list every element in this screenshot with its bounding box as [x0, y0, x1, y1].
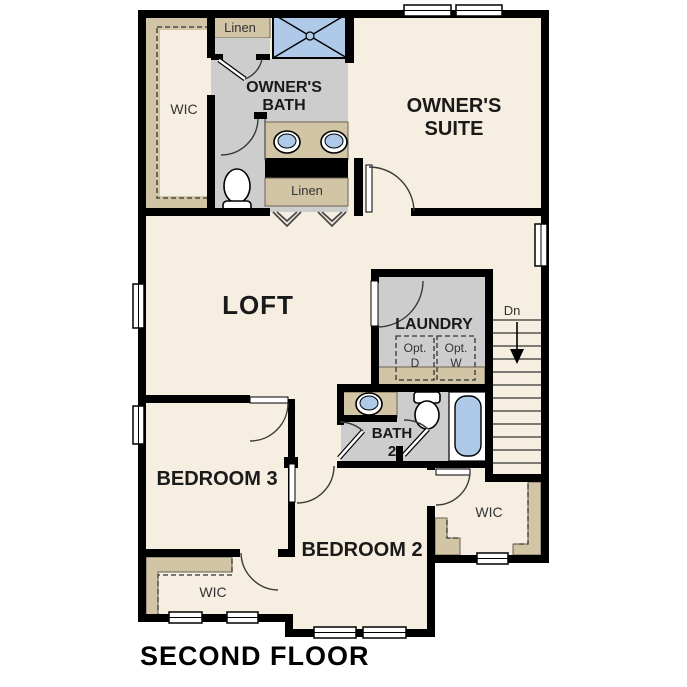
bath2-tub	[449, 392, 486, 461]
window	[477, 553, 508, 564]
window	[363, 627, 406, 638]
laundry-opt-w-line1: Opt.	[445, 341, 468, 355]
bath2-sink	[356, 393, 382, 415]
floor-plan: WIC Linen OWNER'S BATH OWNER'S SUITE Lin…	[0, 0, 687, 687]
window	[133, 406, 144, 444]
owners-wic-label: WIC	[170, 101, 197, 117]
bedroom3-wic-label: WIC	[199, 584, 226, 600]
floor-plan-drawing: WIC Linen OWNER'S BATH OWNER'S SUITE Lin…	[0, 0, 687, 687]
owners-toilet	[223, 169, 251, 212]
window	[456, 5, 502, 16]
bath2-label-line2: 2	[388, 443, 396, 460]
laundry-label: LAUNDRY	[395, 316, 473, 333]
linen-mid-label: Linen	[291, 183, 323, 198]
shower	[273, 14, 347, 64]
window	[314, 627, 356, 638]
bedroom2-label: BEDROOM 2	[301, 539, 422, 561]
window	[133, 284, 144, 328]
window	[227, 612, 258, 623]
owners-bath-label-line1: OWNER'S	[246, 79, 322, 96]
laundry-opt-w-line2: W	[450, 356, 462, 370]
window	[169, 612, 202, 623]
bedroom2-wic-label: WIC	[475, 504, 502, 520]
laundry-opt-d-line2: D	[411, 356, 420, 370]
window	[404, 5, 451, 16]
stairs-down-label: Dn	[504, 303, 521, 318]
plan-title: SECOND FLOOR	[140, 641, 370, 671]
laundry-opt-d-line1: Opt.	[404, 341, 427, 355]
bath2-label-line1: BATH	[372, 425, 413, 442]
window	[535, 224, 547, 266]
laundry-shelf	[375, 367, 485, 385]
owners-bath-label-line2: BATH	[262, 97, 305, 114]
vanity-back-wall	[265, 158, 348, 178]
bath2-toilet	[414, 392, 440, 429]
owners-suite-label-line2: SUITE	[425, 118, 484, 140]
bedroom3-label: BEDROOM 3	[156, 468, 277, 490]
loft-label: LOFT	[222, 290, 294, 320]
linen-top-label: Linen	[224, 20, 256, 35]
owners-suite-label-line1: OWNER'S	[407, 95, 502, 117]
